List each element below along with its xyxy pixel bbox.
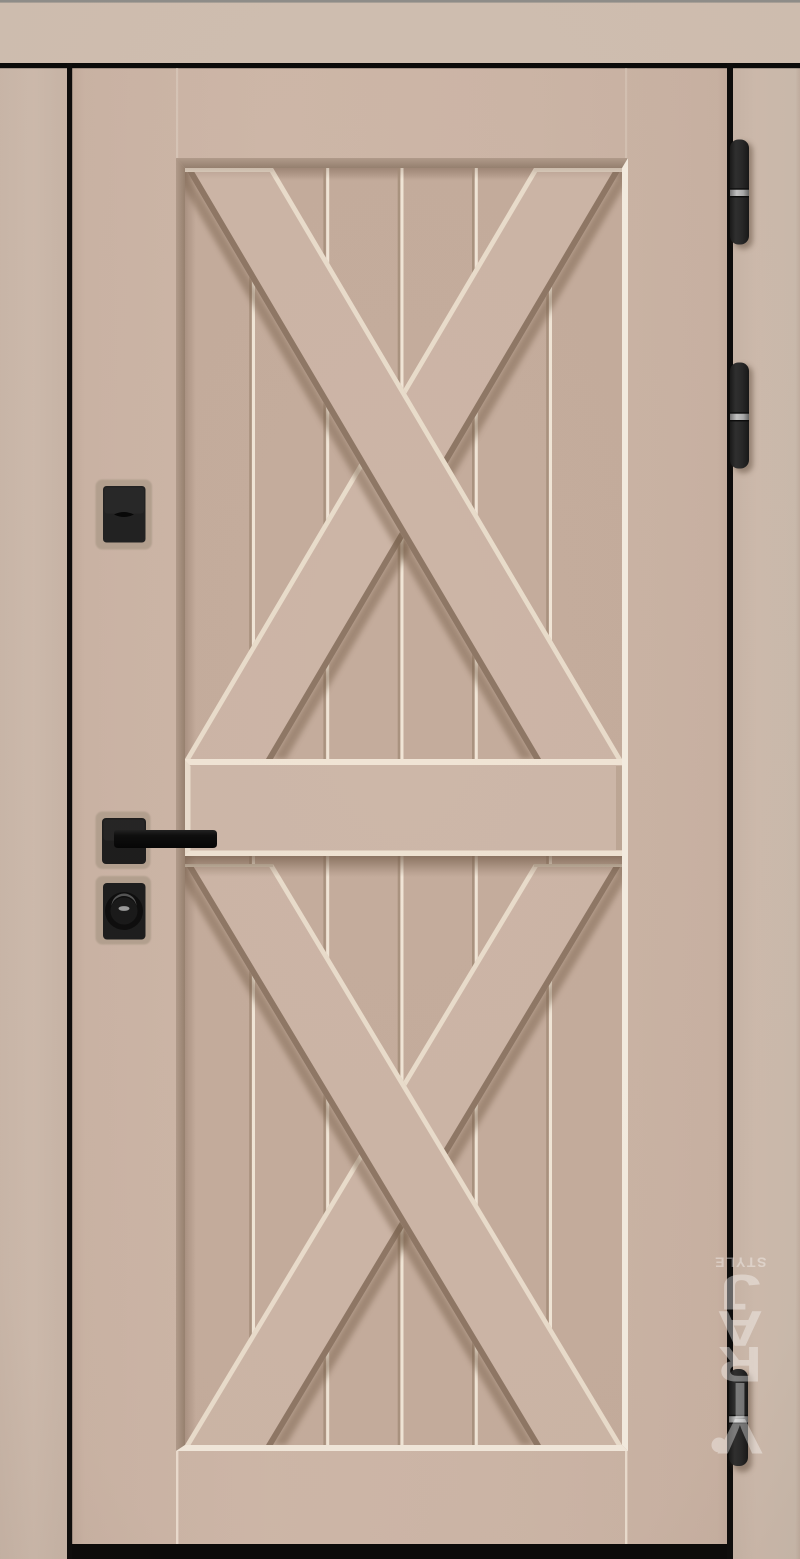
svg-text:V: V bbox=[716, 1408, 763, 1464]
